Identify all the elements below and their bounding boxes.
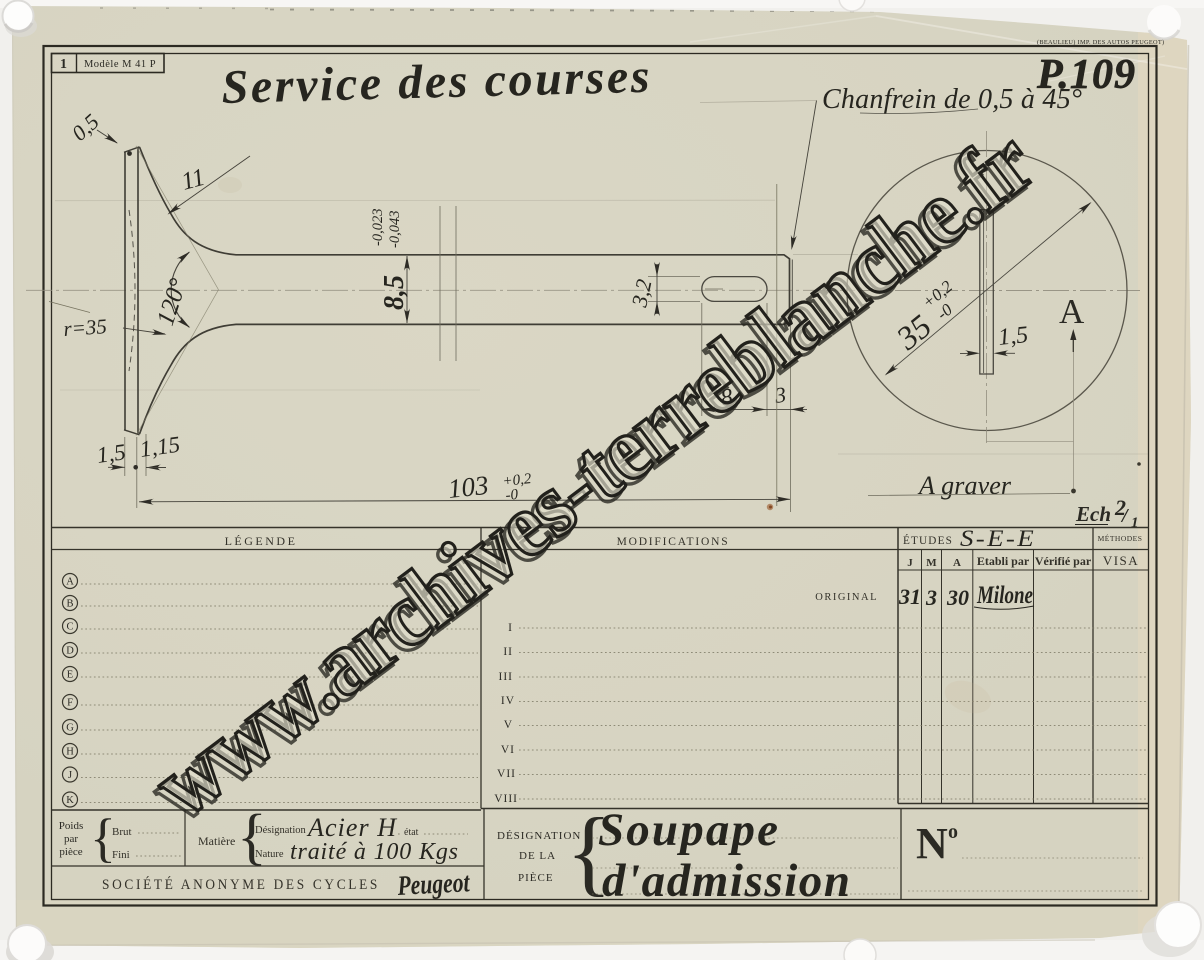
svg-text:{: { <box>237 803 267 871</box>
svg-text:IV: IV <box>501 695 515 707</box>
svg-text:Nature: Nature <box>255 849 284 860</box>
svg-text:VII: VII <box>497 768 516 780</box>
svg-text:Ech: Ech <box>1075 502 1111 526</box>
svg-text:1: 1 <box>60 57 67 72</box>
svg-text:F: F <box>67 698 73 709</box>
svg-text:Acier H: Acier H <box>306 813 397 842</box>
svg-text:30: 30 <box>946 585 969 610</box>
svg-text:d'admission: d'admission <box>602 855 850 907</box>
svg-text:traité à 100 Kgs: traité à 100 Kgs <box>290 839 458 865</box>
svg-text:DE LA: DE LA <box>519 850 556 862</box>
svg-text:31: 31 <box>898 584 921 609</box>
svg-text:V: V <box>504 719 513 731</box>
svg-text:Fini: Fini <box>112 849 130 861</box>
svg-text:H: H <box>66 747 74 758</box>
svg-text:J: J <box>907 557 913 569</box>
svg-text:E: E <box>67 670 73 681</box>
svg-text:I: I <box>508 622 513 634</box>
svg-text:SOCIÉTÉ ANONYME DES CYCLES: SOCIÉTÉ ANONYME DES CYCLES <box>102 876 380 893</box>
svg-text:3: 3 <box>925 585 937 610</box>
svg-text:M: M <box>926 557 937 569</box>
svg-text:-0,023: -0,023 <box>370 209 386 246</box>
svg-text:G: G <box>66 723 74 734</box>
svg-text:état: état <box>404 827 419 838</box>
svg-text:Peugeot: Peugeot <box>396 867 471 902</box>
svg-text:N: N <box>916 819 948 868</box>
svg-text:VIII: VIII <box>494 793 518 805</box>
svg-text:Poids: Poids <box>59 820 83 832</box>
svg-text:A: A <box>66 577 74 588</box>
svg-text:J: J <box>68 770 72 781</box>
svg-text:Brut: Brut <box>112 826 132 838</box>
svg-text:Désignation: Désignation <box>255 825 306 836</box>
svg-text:1,5: 1,5 <box>95 439 127 468</box>
svg-text:S-E-E: S-E-E <box>960 526 1036 551</box>
svg-text:1,5: 1,5 <box>997 322 1030 351</box>
svg-text:pièce: pièce <box>59 846 82 858</box>
svg-text:o: o <box>948 821 958 843</box>
svg-text:(BEAULIEU) IMP. DES AUTOS PEUG: (BEAULIEU) IMP. DES AUTOS PEUGEOT) <box>1037 39 1164 46</box>
svg-text:Vérifié par: Vérifié par <box>1035 554 1092 568</box>
svg-text:Milone: Milone <box>976 582 1033 609</box>
svg-text:VISA: VISA <box>1103 553 1139 568</box>
svg-text:LÉGENDE: LÉGENDE <box>225 534 298 548</box>
svg-text:Etabli par: Etabli par <box>977 554 1030 568</box>
svg-text:VI: VI <box>501 744 515 756</box>
svg-text:A: A <box>953 557 961 569</box>
svg-text:Chanfrein de 0,5 à 45°: Chanfrein de 0,5 à 45° <box>822 84 1082 115</box>
svg-text:D: D <box>66 646 74 657</box>
svg-text:MÉTHODES: MÉTHODES <box>1098 533 1143 543</box>
svg-text:ORIGINAL: ORIGINAL <box>815 592 878 603</box>
svg-text:A: A <box>1059 292 1085 331</box>
svg-text:B: B <box>66 599 73 610</box>
svg-text:A graver: A graver <box>917 471 1012 500</box>
svg-text:8,5: 8,5 <box>379 275 410 310</box>
svg-text:1: 1 <box>1131 515 1139 531</box>
svg-text:r=35: r=35 <box>63 314 108 341</box>
svg-text:Modèle M 41 P: Modèle M 41 P <box>84 59 156 70</box>
svg-text:MODIFICATIONS: MODIFICATIONS <box>617 536 730 548</box>
svg-text:III: III <box>499 671 514 683</box>
svg-text:PIÈCE: PIÈCE <box>518 872 554 884</box>
svg-text:ÉTUDES: ÉTUDES <box>903 533 953 547</box>
svg-text:C: C <box>66 622 73 633</box>
svg-text:Matière: Matière <box>198 834 235 848</box>
svg-text:-0,043: -0,043 <box>387 211 403 248</box>
svg-text:par: par <box>64 833 78 845</box>
svg-text:II: II <box>503 646 513 658</box>
svg-text:Service des courses: Service des courses <box>221 50 650 114</box>
svg-text:K: K <box>66 795 74 806</box>
